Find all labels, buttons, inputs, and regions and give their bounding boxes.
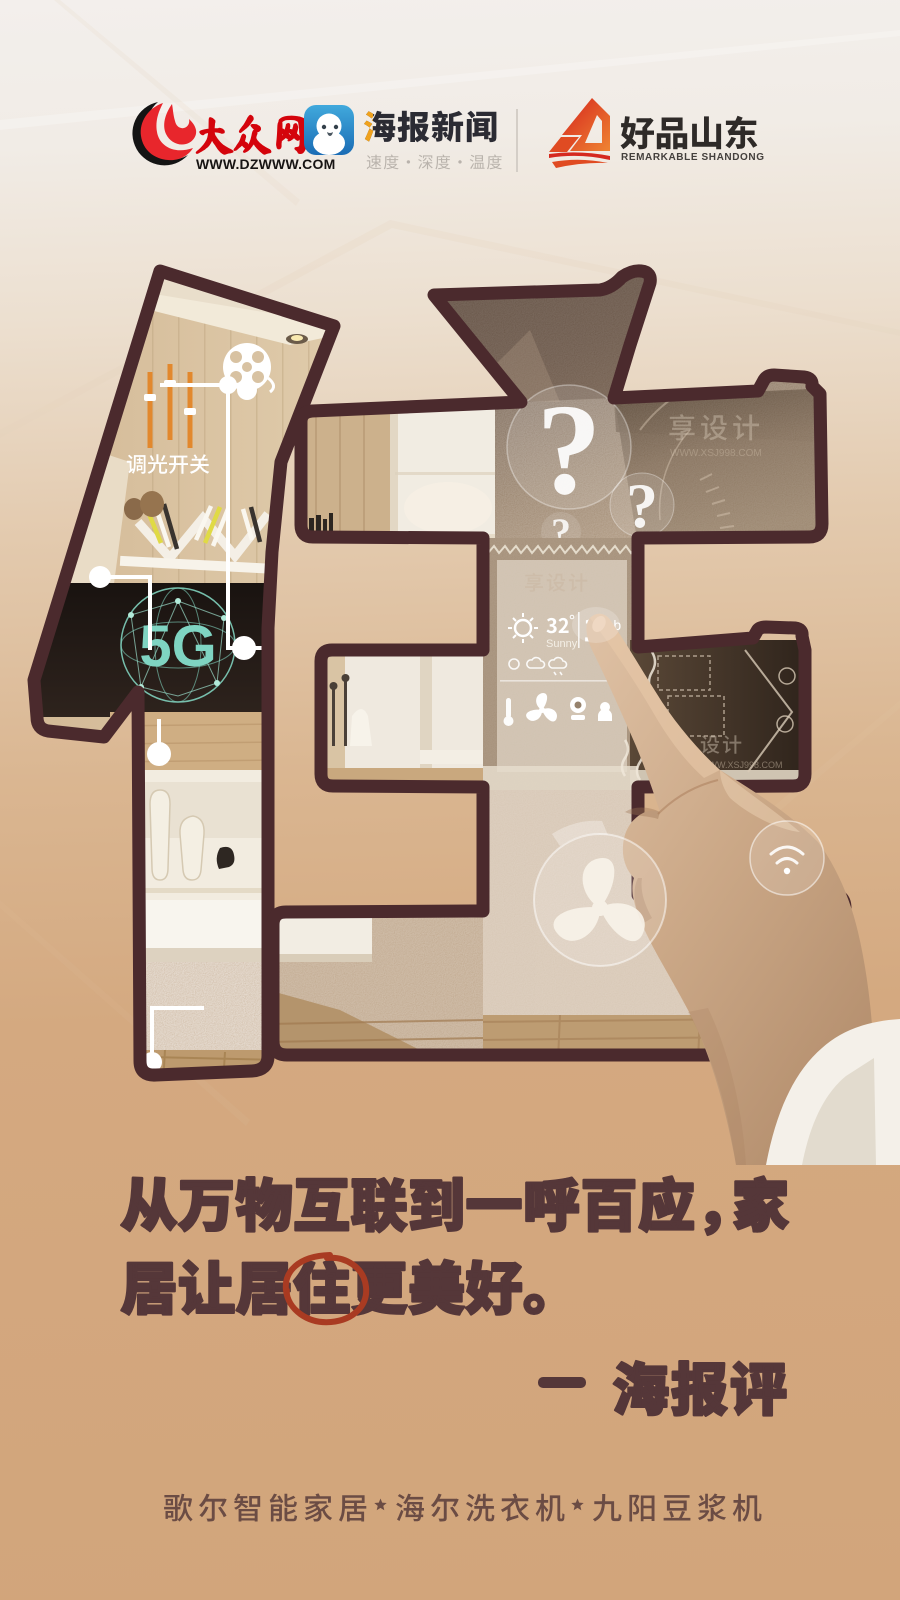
svg-text:Sunny: Sunny <box>546 638 578 650</box>
svg-text:?: ? <box>537 378 602 522</box>
svg-text:REMARKABLE SHANDONG: REMARKABLE SHANDONG <box>621 152 765 163</box>
svg-text:?: ? <box>626 470 658 541</box>
svg-text:WWW.DZWWW.COM: WWW.DZWWW.COM <box>196 156 335 172</box>
svg-text:WWW.XSJ998.COM: WWW.XSJ998.COM <box>670 448 762 459</box>
